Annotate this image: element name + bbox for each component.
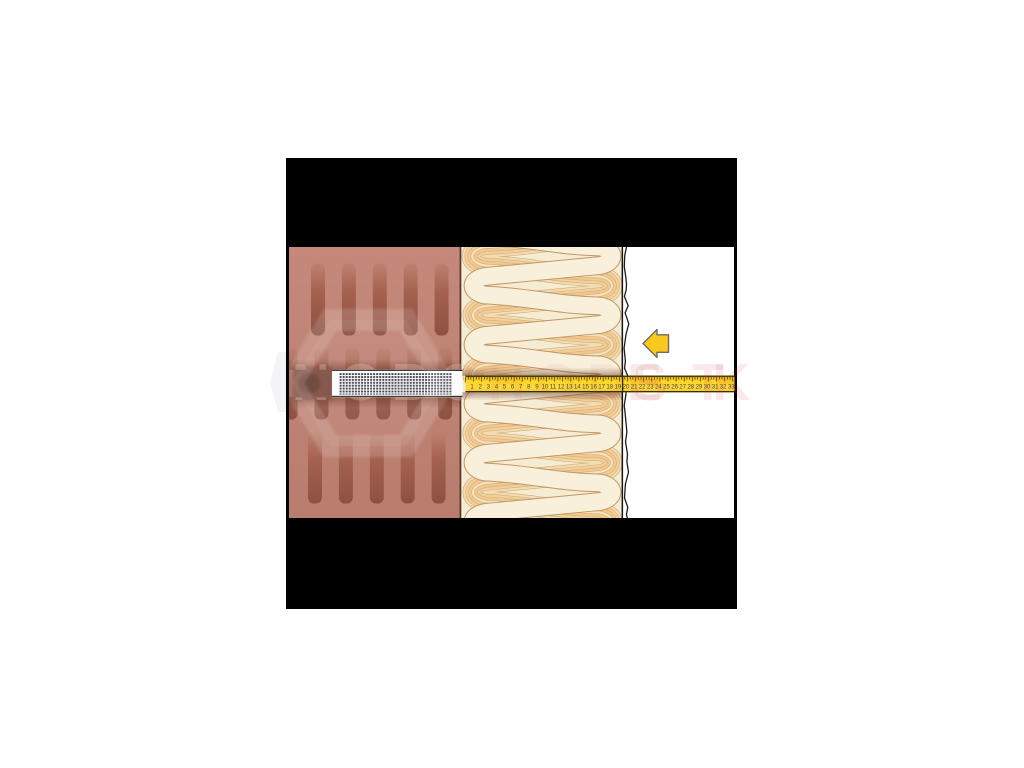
svg-text:27: 27 (679, 383, 686, 390)
svg-text:2: 2 (479, 383, 483, 390)
svg-text:TK: TK (692, 354, 750, 412)
svg-text:26: 26 (671, 383, 678, 390)
svg-text:ES: ES (627, 354, 667, 412)
